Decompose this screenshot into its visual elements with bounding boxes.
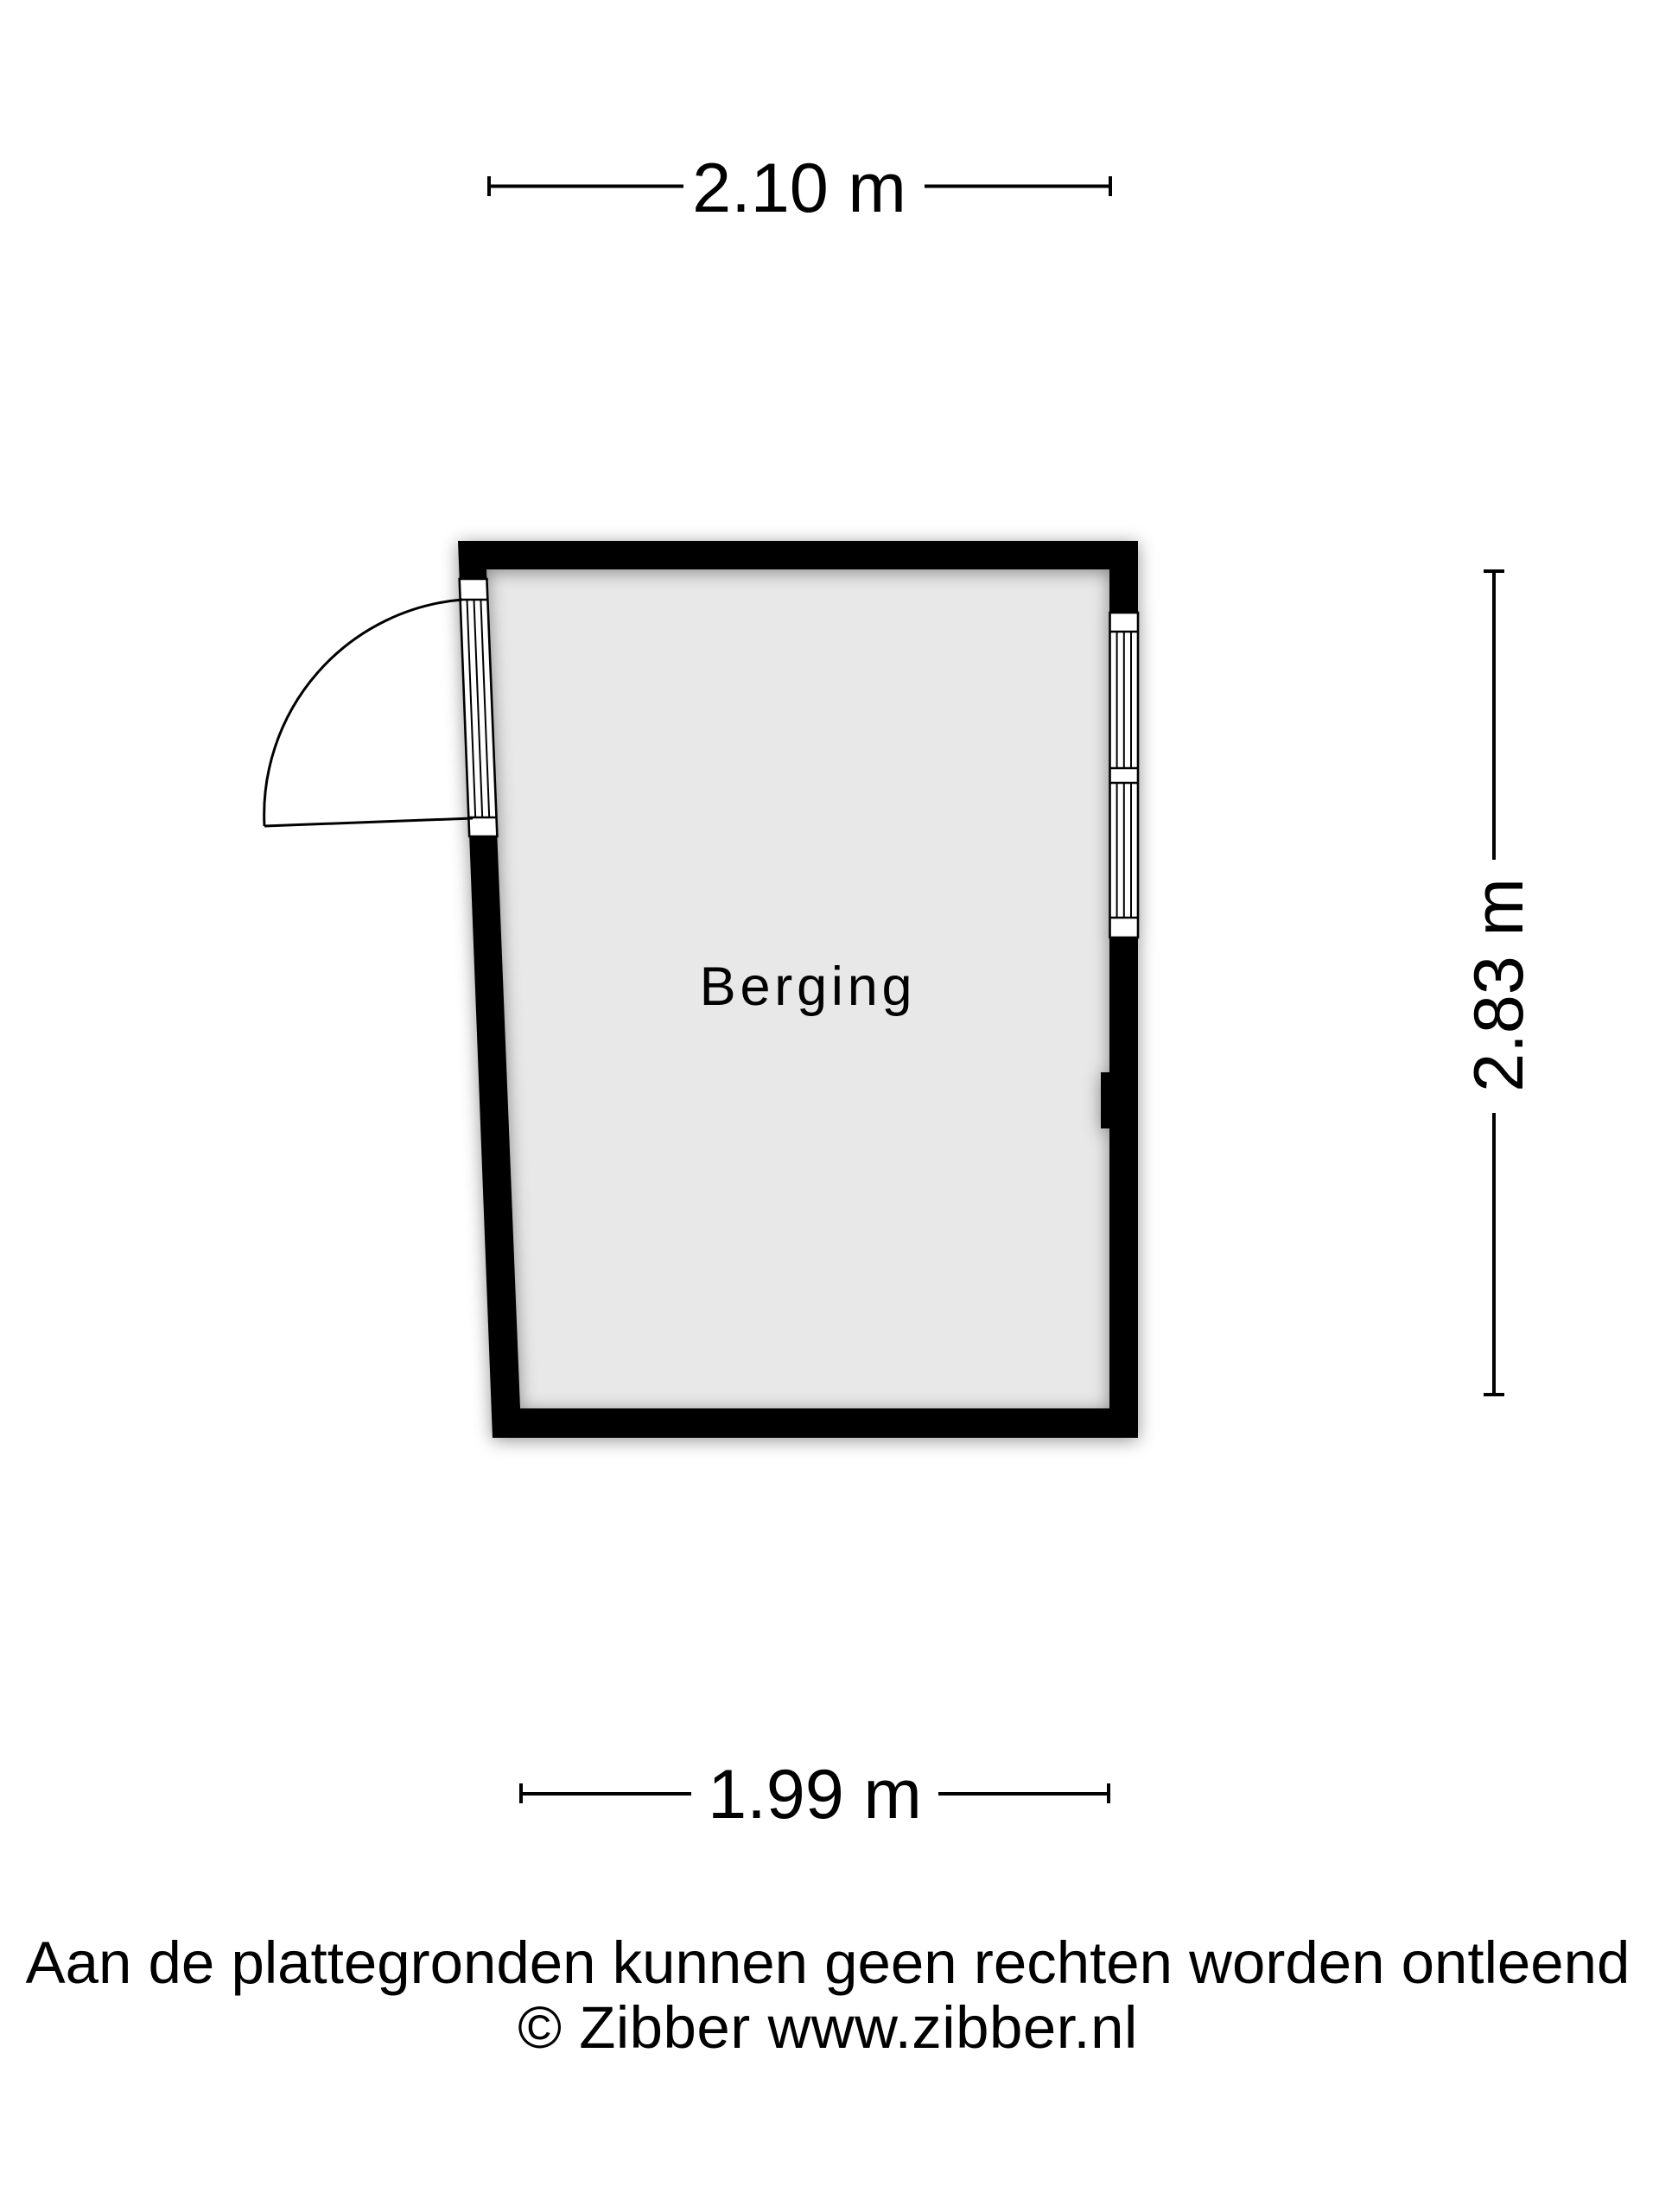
svg-text:2.83 m: 2.83 m (1460, 878, 1538, 1092)
svg-text:Aan de plattegronden kunnen ge: Aan de plattegronden kunnen geen rechten… (26, 1929, 1630, 1996)
svg-text:Berging: Berging (700, 957, 917, 1017)
svg-text:2.10 m: 2.10 m (692, 149, 906, 227)
svg-text:© Zibber www.zibber.nl: © Zibber www.zibber.nl (518, 1994, 1138, 2061)
svg-text:1.99 m: 1.99 m (708, 1756, 922, 1834)
